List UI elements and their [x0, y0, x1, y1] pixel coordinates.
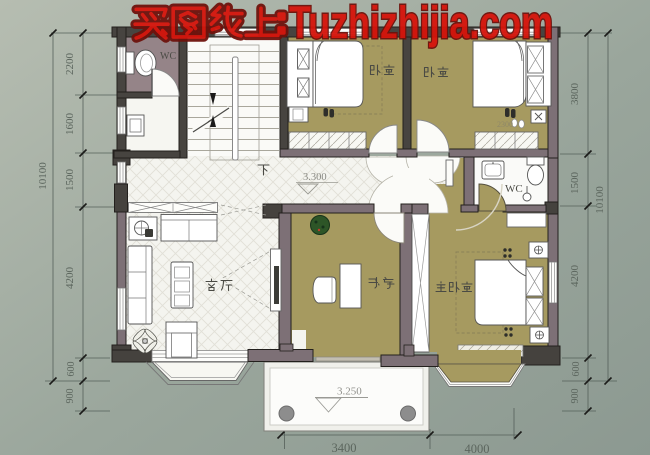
svg-text:WC: WC [505, 183, 523, 195]
svg-text:900: 900 [570, 389, 581, 404]
svg-text:1500: 1500 [64, 169, 76, 192]
svg-text:2300: 2300 [497, 120, 513, 129]
svg-text:3.300: 3.300 [303, 172, 327, 183]
svg-text:1600: 1600 [64, 113, 76, 136]
svg-text:600: 600 [66, 362, 77, 377]
svg-text:Tuzhizhijia.com: Tuzhizhijia.com [289, 0, 553, 48]
svg-text:10100: 10100 [594, 186, 606, 214]
svg-text:900: 900 [65, 389, 76, 404]
svg-text:3800: 3800 [569, 83, 581, 106]
svg-text:2200: 2200 [64, 53, 76, 76]
svg-text:3400: 3400 [332, 441, 357, 455]
svg-text:WC: WC [160, 51, 176, 62]
svg-text:4200: 4200 [569, 265, 581, 288]
svg-text:1500: 1500 [569, 172, 581, 195]
svg-text:4000: 4000 [465, 442, 490, 455]
svg-text:10100: 10100 [37, 162, 49, 190]
svg-text:4200: 4200 [64, 267, 76, 290]
svg-text:3.250: 3.250 [337, 386, 362, 398]
svg-text:600: 600 [571, 362, 582, 377]
